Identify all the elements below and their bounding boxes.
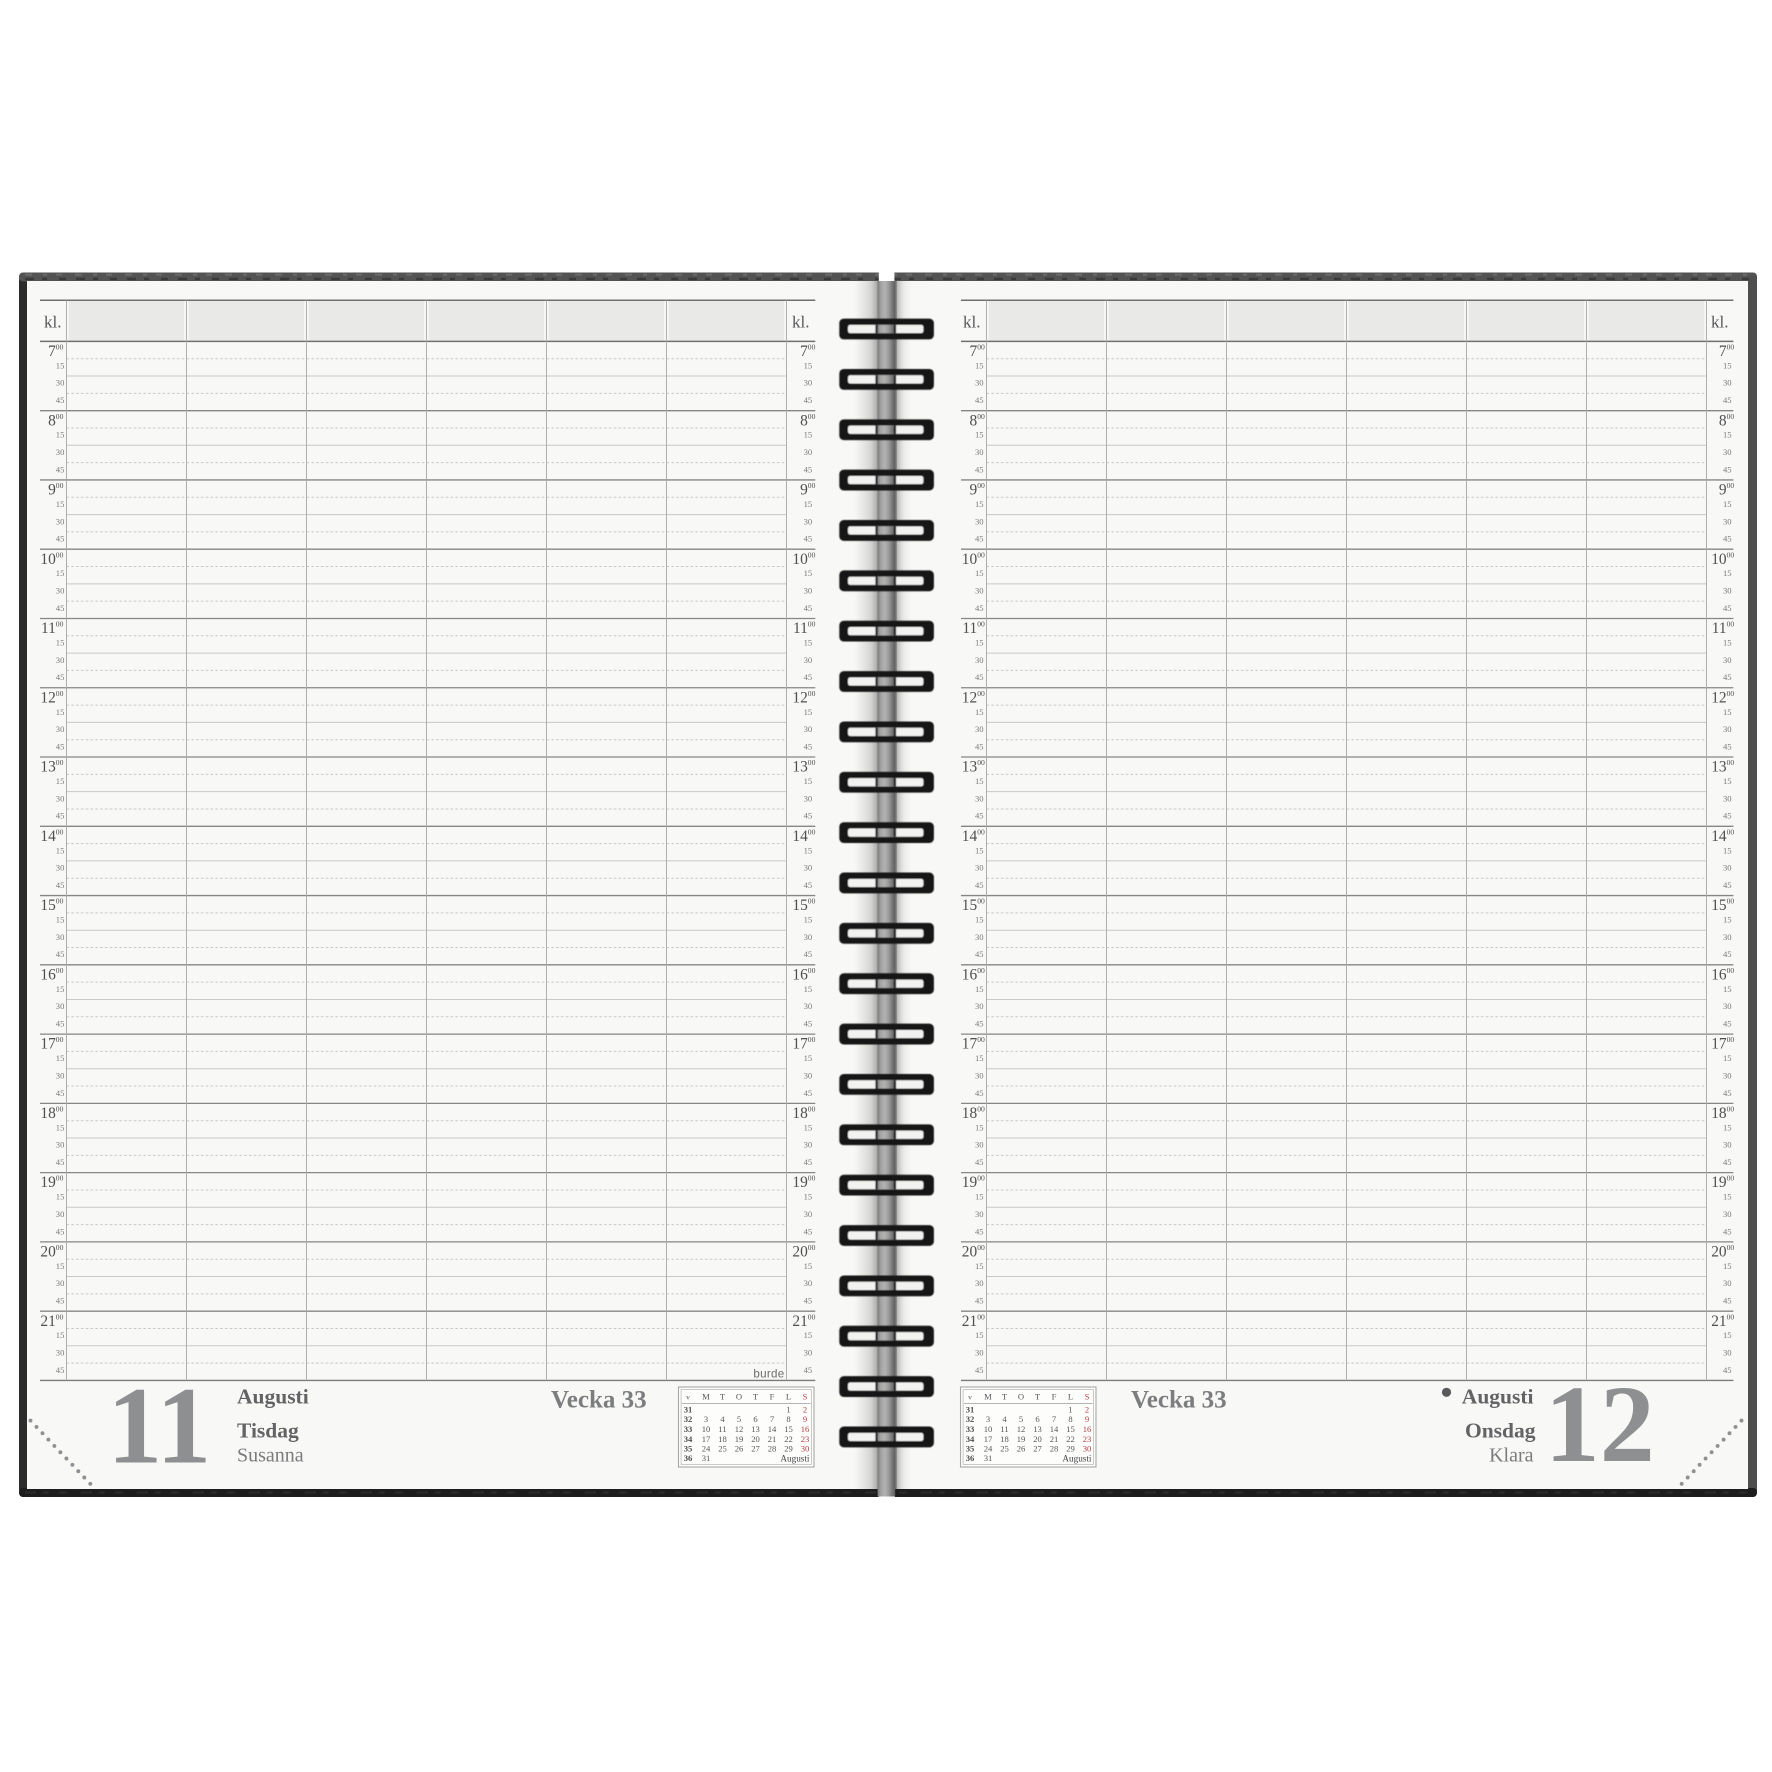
svg-text:00: 00 (808, 1312, 816, 1321)
svg-text:33: 33 (966, 1424, 975, 1434)
svg-text:14: 14 (40, 828, 56, 845)
svg-text:00: 00 (977, 412, 985, 421)
svg-text:25: 25 (1000, 1444, 1009, 1454)
svg-text:22: 22 (1066, 1434, 1075, 1444)
svg-text:5: 5 (737, 1414, 741, 1424)
svg-text:00: 00 (808, 897, 816, 906)
svg-text:00: 00 (56, 1035, 64, 1044)
svg-text:45: 45 (1723, 395, 1732, 405)
svg-text:15: 15 (975, 499, 984, 509)
svg-text:Susanna: Susanna (237, 1445, 304, 1467)
svg-text:45: 45 (1723, 949, 1732, 959)
svg-text:18: 18 (1000, 1434, 1009, 1444)
svg-text:27: 27 (1033, 1444, 1042, 1454)
svg-text:30: 30 (56, 447, 65, 457)
svg-text:15: 15 (56, 776, 65, 786)
svg-text:00: 00 (977, 1243, 985, 1252)
svg-text:00: 00 (56, 827, 64, 836)
svg-text:00: 00 (1727, 966, 1735, 975)
svg-text:Klara: Klara (1489, 1445, 1534, 1467)
svg-text:24: 24 (702, 1444, 711, 1454)
svg-text:15: 15 (1723, 1192, 1732, 1202)
svg-text:45: 45 (56, 1226, 65, 1236)
svg-text:45: 45 (975, 811, 984, 821)
svg-text:15: 15 (804, 984, 813, 994)
svg-text:30: 30 (804, 932, 813, 942)
svg-text:16: 16 (1083, 1424, 1092, 1434)
svg-text:F: F (770, 1392, 775, 1402)
svg-text:15: 15 (792, 897, 808, 914)
svg-text:45: 45 (56, 880, 65, 890)
svg-text:45: 45 (804, 1226, 813, 1236)
svg-text:30: 30 (804, 1140, 813, 1150)
svg-text:30: 30 (975, 516, 984, 526)
svg-text:45: 45 (804, 1157, 813, 1167)
svg-text:L: L (1068, 1392, 1073, 1402)
svg-text:45: 45 (56, 949, 65, 959)
svg-text:28: 28 (768, 1444, 777, 1454)
svg-text:30: 30 (1723, 1278, 1732, 1288)
svg-text:15: 15 (1723, 568, 1732, 578)
svg-text:15: 15 (975, 984, 984, 994)
svg-text:30: 30 (56, 724, 65, 734)
svg-text:21: 21 (962, 1313, 977, 1330)
svg-text:14: 14 (962, 828, 978, 845)
svg-text:30: 30 (56, 1348, 65, 1358)
svg-text:45: 45 (975, 672, 984, 682)
svg-text:13: 13 (1033, 1424, 1042, 1434)
svg-text:45: 45 (56, 1088, 65, 1098)
svg-text:12: 12 (962, 689, 977, 706)
svg-text:30: 30 (975, 1140, 984, 1150)
svg-text:12: 12 (735, 1424, 744, 1434)
svg-text:1: 1 (786, 1405, 790, 1415)
svg-text:15: 15 (56, 1261, 65, 1271)
svg-text:30: 30 (975, 793, 984, 803)
svg-text:15: 15 (804, 915, 813, 925)
svg-text:30: 30 (975, 378, 984, 388)
svg-text:36: 36 (966, 1453, 975, 1463)
svg-text:4: 4 (1002, 1414, 1007, 1424)
svg-text:19: 19 (962, 1174, 978, 1191)
svg-text:13: 13 (962, 759, 978, 776)
svg-text:00: 00 (56, 1104, 64, 1113)
svg-text:30: 30 (975, 724, 984, 734)
svg-text:19: 19 (1711, 1174, 1727, 1191)
svg-text:45: 45 (1723, 880, 1732, 890)
svg-text:00: 00 (977, 897, 985, 906)
svg-text:30: 30 (804, 863, 813, 873)
svg-text:15: 15 (804, 1192, 813, 1202)
svg-text:21: 21 (40, 1313, 55, 1330)
svg-text:17: 17 (1711, 1036, 1727, 1053)
svg-text:30: 30 (56, 586, 65, 596)
svg-text:15: 15 (975, 1122, 984, 1132)
svg-text:M: M (984, 1392, 992, 1402)
svg-text:17: 17 (984, 1434, 993, 1444)
svg-text:15: 15 (1711, 897, 1727, 914)
svg-text:15: 15 (804, 1330, 813, 1340)
svg-text:30: 30 (56, 516, 65, 526)
svg-text:35: 35 (966, 1444, 975, 1454)
svg-text:00: 00 (808, 827, 816, 836)
svg-text:16: 16 (1711, 966, 1727, 983)
svg-text:00: 00 (977, 550, 985, 559)
svg-text:30: 30 (56, 655, 65, 665)
svg-text:15: 15 (1723, 499, 1732, 509)
svg-text:00: 00 (56, 620, 64, 629)
svg-text:34: 34 (966, 1434, 975, 1444)
svg-text:4: 4 (720, 1414, 725, 1424)
svg-text:v: v (968, 1393, 972, 1402)
svg-text:Vecka 33: Vecka 33 (551, 1387, 647, 1414)
svg-text:14: 14 (1711, 828, 1727, 845)
svg-text:00: 00 (808, 620, 816, 629)
svg-text:15: 15 (804, 568, 813, 578)
svg-text:45: 45 (56, 534, 65, 544)
svg-text:15: 15 (804, 499, 813, 509)
svg-text:21: 21 (792, 1313, 807, 1330)
svg-text:L: L (786, 1392, 791, 1402)
svg-text:M: M (702, 1392, 710, 1402)
svg-text:15: 15 (804, 638, 813, 648)
svg-text:28: 28 (1050, 1444, 1059, 1454)
svg-text:10: 10 (962, 551, 978, 568)
svg-text:15: 15 (1723, 1053, 1732, 1063)
svg-text:S: S (803, 1392, 808, 1402)
svg-text:7: 7 (770, 1414, 775, 1424)
svg-text:30: 30 (975, 1070, 984, 1080)
svg-text:30: 30 (1723, 932, 1732, 942)
svg-text:30: 30 (804, 378, 813, 388)
svg-text:30: 30 (804, 1348, 813, 1358)
svg-text:45: 45 (804, 811, 813, 821)
svg-text:14: 14 (792, 828, 808, 845)
svg-text:00: 00 (808, 1035, 816, 1044)
svg-text:15: 15 (804, 1261, 813, 1271)
svg-text:15: 15 (804, 430, 813, 440)
svg-text:30: 30 (56, 793, 65, 803)
svg-text:Vecka 33: Vecka 33 (1131, 1387, 1227, 1414)
svg-text:15: 15 (56, 360, 65, 370)
svg-text:20: 20 (1711, 1244, 1727, 1261)
svg-text:15: 15 (1723, 1122, 1732, 1132)
svg-text:30: 30 (1723, 863, 1732, 873)
svg-text:30: 30 (804, 1209, 813, 1219)
svg-text:10: 10 (1711, 551, 1727, 568)
svg-text:34: 34 (684, 1434, 693, 1444)
svg-text:23: 23 (801, 1434, 810, 1444)
svg-text:45: 45 (975, 395, 984, 405)
svg-text:20: 20 (792, 1244, 808, 1261)
svg-text:30: 30 (804, 1070, 813, 1080)
svg-text:2: 2 (1085, 1405, 1089, 1415)
svg-text:13: 13 (40, 759, 56, 776)
svg-text:30: 30 (56, 1209, 65, 1219)
svg-text:Augusti: Augusti (780, 1453, 810, 1463)
svg-text:Augusti: Augusti (1462, 1385, 1534, 1409)
svg-text:9: 9 (1085, 1414, 1089, 1424)
svg-text:45: 45 (56, 1365, 65, 1375)
svg-text:30: 30 (56, 1278, 65, 1288)
svg-text:45: 45 (804, 1365, 813, 1375)
svg-text:17: 17 (702, 1434, 711, 1444)
svg-text:19: 19 (40, 1174, 56, 1191)
svg-text:12: 12 (1711, 689, 1726, 706)
svg-text:30: 30 (804, 586, 813, 596)
svg-text:45: 45 (975, 1226, 984, 1236)
svg-text:11: 11 (718, 1424, 726, 1434)
svg-text:00: 00 (808, 966, 816, 975)
svg-text:12: 12 (1545, 1363, 1655, 1485)
svg-text:F: F (1052, 1392, 1057, 1402)
svg-text:30: 30 (975, 1348, 984, 1358)
svg-text:15: 15 (56, 1330, 65, 1340)
svg-text:30: 30 (804, 1001, 813, 1011)
svg-text:00: 00 (56, 966, 64, 975)
svg-text:45: 45 (804, 534, 813, 544)
svg-text:00: 00 (977, 620, 985, 629)
svg-text:30: 30 (975, 1001, 984, 1011)
svg-text:15: 15 (975, 360, 984, 370)
svg-text:45: 45 (975, 880, 984, 890)
svg-text:21: 21 (1711, 1313, 1726, 1330)
svg-text:45: 45 (804, 1296, 813, 1306)
svg-text:11: 11 (1712, 620, 1727, 637)
svg-text:00: 00 (808, 1174, 816, 1183)
svg-text:16: 16 (801, 1424, 810, 1434)
svg-text:19: 19 (792, 1174, 808, 1191)
svg-text:15: 15 (1066, 1424, 1075, 1434)
svg-text:15: 15 (975, 1330, 984, 1340)
svg-text:kl.: kl. (792, 313, 809, 332)
svg-text:30: 30 (56, 863, 65, 873)
svg-text:26: 26 (735, 1444, 744, 1454)
svg-text:15: 15 (975, 430, 984, 440)
svg-text:00: 00 (1727, 689, 1735, 698)
svg-text:45: 45 (1723, 1088, 1732, 1098)
svg-text:00: 00 (1727, 412, 1735, 421)
svg-text:19: 19 (1017, 1434, 1026, 1444)
svg-text:15: 15 (1723, 360, 1732, 370)
svg-text:21: 21 (768, 1434, 777, 1444)
svg-text:15: 15 (1723, 430, 1732, 440)
svg-text:45: 45 (804, 464, 813, 474)
svg-text:15: 15 (962, 897, 978, 914)
svg-text:17: 17 (792, 1036, 808, 1053)
svg-text:22: 22 (784, 1434, 793, 1444)
svg-text:29: 29 (1066, 1444, 1075, 1454)
svg-text:45: 45 (56, 811, 65, 821)
svg-text:45: 45 (56, 1018, 65, 1028)
svg-text:11: 11 (41, 620, 56, 637)
svg-text:15: 15 (975, 845, 984, 855)
svg-text:11: 11 (962, 620, 977, 637)
svg-text:20: 20 (40, 1244, 56, 1261)
svg-text:16: 16 (962, 966, 978, 983)
svg-text:15: 15 (56, 638, 65, 648)
svg-text:30: 30 (975, 1278, 984, 1288)
svg-text:18: 18 (792, 1105, 808, 1122)
svg-text:18: 18 (962, 1105, 978, 1122)
svg-text:10: 10 (792, 551, 808, 568)
svg-text:45: 45 (804, 603, 813, 613)
svg-text:45: 45 (56, 464, 65, 474)
svg-text:00: 00 (1727, 481, 1735, 490)
svg-text:30: 30 (975, 863, 984, 873)
svg-text:13: 13 (792, 759, 808, 776)
svg-text:45: 45 (975, 603, 984, 613)
svg-text:30: 30 (975, 1209, 984, 1219)
svg-text:8: 8 (786, 1414, 790, 1424)
svg-text:5: 5 (1019, 1414, 1023, 1424)
svg-text:45: 45 (804, 1088, 813, 1098)
svg-text:00: 00 (1727, 343, 1735, 352)
svg-text:burde: burde (753, 1368, 784, 1381)
svg-text:15: 15 (804, 776, 813, 786)
svg-text:30: 30 (1723, 1209, 1732, 1219)
svg-text:30: 30 (804, 516, 813, 526)
svg-text:45: 45 (56, 1157, 65, 1167)
svg-text:3: 3 (704, 1414, 708, 1424)
svg-text:v: v (686, 1393, 690, 1402)
svg-text:30: 30 (56, 1001, 65, 1011)
svg-text:12: 12 (40, 689, 55, 706)
svg-text:45: 45 (975, 1088, 984, 1098)
svg-text:15: 15 (56, 1122, 65, 1132)
svg-text:15: 15 (1723, 915, 1732, 925)
svg-text:30: 30 (804, 655, 813, 665)
svg-text:16: 16 (792, 966, 808, 983)
svg-text:30: 30 (1083, 1444, 1092, 1454)
svg-text:15: 15 (56, 1053, 65, 1063)
svg-text:00: 00 (977, 966, 985, 975)
svg-text:45: 45 (1723, 1157, 1732, 1167)
svg-text:14: 14 (768, 1424, 777, 1434)
svg-text:21: 21 (1050, 1434, 1059, 1444)
svg-text:23: 23 (1083, 1434, 1092, 1444)
svg-text:9: 9 (803, 1414, 807, 1424)
svg-text:00: 00 (1727, 1035, 1735, 1044)
svg-text:00: 00 (1727, 1312, 1735, 1321)
svg-text:30: 30 (1723, 724, 1732, 734)
svg-text:3: 3 (986, 1414, 990, 1424)
svg-text:25: 25 (718, 1444, 727, 1454)
svg-text:13: 13 (1711, 759, 1727, 776)
svg-text:30: 30 (56, 378, 65, 388)
svg-text:00: 00 (977, 827, 985, 836)
svg-text:30: 30 (804, 1278, 813, 1288)
svg-text:15: 15 (975, 707, 984, 717)
svg-text:00: 00 (56, 412, 64, 421)
svg-text:45: 45 (1723, 1296, 1732, 1306)
svg-text:00: 00 (977, 1104, 985, 1113)
svg-text:31: 31 (966, 1405, 975, 1415)
svg-text:45: 45 (56, 395, 65, 405)
svg-text:kl.: kl. (1711, 313, 1728, 332)
svg-text:18: 18 (40, 1105, 56, 1122)
svg-text:29: 29 (784, 1444, 793, 1454)
svg-text:6: 6 (1035, 1414, 1040, 1424)
svg-text:15: 15 (56, 915, 65, 925)
svg-text:45: 45 (804, 949, 813, 959)
svg-text:15: 15 (56, 499, 65, 509)
svg-text:30: 30 (975, 447, 984, 457)
svg-text:00: 00 (808, 343, 816, 352)
svg-text:30: 30 (1723, 1070, 1732, 1080)
svg-text:00: 00 (977, 1312, 985, 1321)
svg-text:45: 45 (804, 880, 813, 890)
svg-text:12: 12 (1017, 1424, 1026, 1434)
svg-text:15: 15 (56, 430, 65, 440)
svg-text:30: 30 (804, 724, 813, 734)
svg-text:00: 00 (808, 1243, 816, 1252)
svg-text:00: 00 (56, 1243, 64, 1252)
svg-text:15: 15 (975, 1053, 984, 1063)
svg-text:15: 15 (804, 707, 813, 717)
svg-text:45: 45 (1723, 1018, 1732, 1028)
svg-text:00: 00 (1727, 1174, 1735, 1183)
svg-text:32: 32 (966, 1414, 975, 1424)
svg-text:Tisdag: Tisdag (237, 1419, 299, 1443)
svg-text:Augusti: Augusti (1062, 1453, 1092, 1463)
svg-text:45: 45 (56, 603, 65, 613)
svg-text:00: 00 (977, 1174, 985, 1183)
svg-text:17: 17 (40, 1036, 56, 1053)
svg-text:10: 10 (702, 1424, 711, 1434)
svg-text:00: 00 (56, 1312, 64, 1321)
svg-text:15: 15 (1723, 638, 1732, 648)
svg-text:30: 30 (56, 1140, 65, 1150)
svg-text:00: 00 (1727, 620, 1735, 629)
svg-text:00: 00 (1727, 1243, 1735, 1252)
svg-text:30: 30 (1723, 516, 1732, 526)
svg-text:00: 00 (977, 481, 985, 490)
svg-text:15: 15 (975, 638, 984, 648)
svg-text:S: S (1085, 1392, 1090, 1402)
svg-text:45: 45 (975, 464, 984, 474)
svg-text:45: 45 (1723, 741, 1732, 751)
svg-text:1: 1 (1068, 1405, 1072, 1415)
svg-text:15: 15 (56, 845, 65, 855)
svg-text:15: 15 (784, 1424, 793, 1434)
svg-text:45: 45 (56, 741, 65, 751)
svg-text:45: 45 (1723, 811, 1732, 821)
svg-text:17: 17 (962, 1036, 978, 1053)
svg-text:10: 10 (984, 1424, 993, 1434)
svg-text:30: 30 (1723, 586, 1732, 596)
svg-text:00: 00 (56, 758, 64, 767)
svg-text:15: 15 (804, 1122, 813, 1132)
svg-text:T: T (1035, 1392, 1041, 1402)
svg-text:30: 30 (56, 932, 65, 942)
svg-text:45: 45 (804, 1018, 813, 1028)
svg-text:45: 45 (804, 672, 813, 682)
svg-text:00: 00 (56, 550, 64, 559)
svg-text:00: 00 (1727, 827, 1735, 836)
svg-text:26: 26 (1017, 1444, 1026, 1454)
svg-text:20: 20 (751, 1434, 760, 1444)
svg-text:15: 15 (975, 1192, 984, 1202)
svg-text:45: 45 (975, 741, 984, 751)
svg-text:16: 16 (40, 966, 56, 983)
svg-text:00: 00 (1727, 758, 1735, 767)
svg-text:30: 30 (1723, 793, 1732, 803)
svg-text:30: 30 (1723, 378, 1732, 388)
svg-text:00: 00 (56, 897, 64, 906)
svg-text:00: 00 (808, 412, 816, 421)
svg-text:45: 45 (1723, 672, 1732, 682)
